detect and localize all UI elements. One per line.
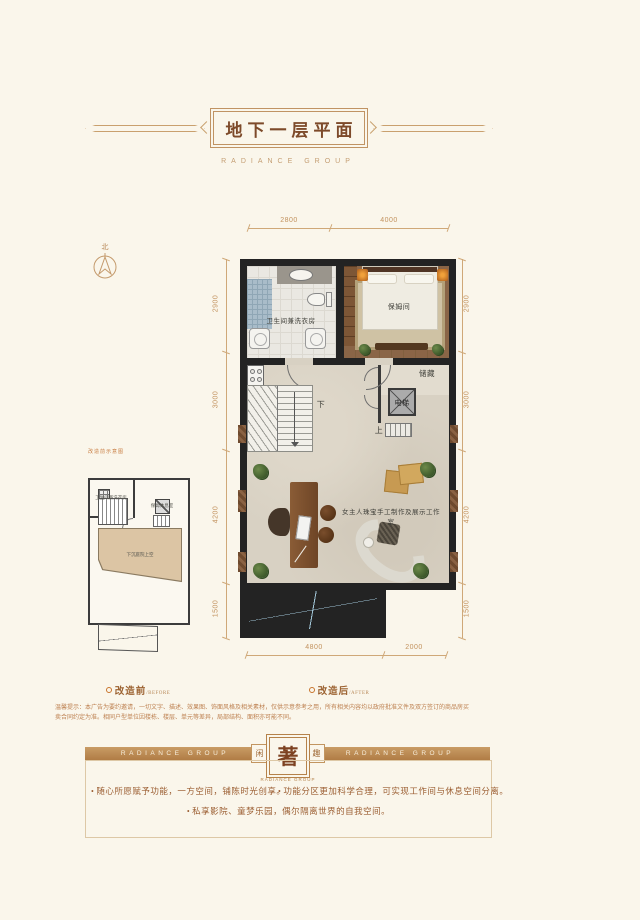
pilaster: [450, 425, 458, 443]
toilet-icon: [307, 292, 334, 308]
vanity-counter: [277, 266, 332, 284]
dim-label: 3000: [213, 382, 220, 418]
before-rest-label: 保姆休息室: [136, 503, 188, 509]
caption-before-en: /BEFORE: [146, 691, 170, 696]
caption-after-zh: 改造后: [318, 687, 350, 697]
wall: [133, 478, 135, 518]
door-opening: [365, 358, 393, 365]
disclaimer: 温馨提示：本广告为要约邀请，一切文字、描述、效果图、饰面风格及相关素材，仅供示意…: [55, 703, 491, 723]
plant-icon: [420, 462, 435, 477]
bullet-ring-icon: [106, 687, 112, 693]
nightstand-icon: [437, 269, 448, 281]
nanny-room: 保姆间: [344, 266, 449, 358]
feature-item-1: •随心所愿赋予功能，一方空间，铺陈时光创享。: [91, 785, 285, 797]
feature-text-1: 随心所愿赋予功能，一方空间，铺陈时光创享。: [96, 786, 285, 796]
disclaimer-line2: 卖合同约定为准。相同户型单位因楼栋、楼层、单元等差异，局部结构、面积亦可能不同。: [55, 713, 491, 723]
feature-text-2: 功能分区更加科学合理，可实现工作间与休息空间分离。: [283, 786, 508, 796]
dim-line-bottom: [246, 655, 446, 656]
caption-before-zh: 改造前: [115, 687, 147, 697]
plant-icon: [359, 344, 370, 355]
feature-box: •随心所愿赋予功能，一方空间，铺陈时光创享。 •功能分区更加科学合理，可实现工作…: [85, 760, 492, 838]
wall: [344, 358, 449, 365]
dim-label: 2800: [259, 217, 319, 224]
feature-item-3: •私享影院、童梦乐园，偶尔隔离世界的自我空间。: [86, 805, 491, 817]
main-staircase: [247, 385, 313, 452]
stool-icon: [320, 505, 336, 521]
dim-label: 2900: [464, 286, 471, 322]
stool-icon: [318, 527, 334, 543]
page-title: 地下一层平面: [221, 116, 358, 141]
dim-label: 1500: [213, 591, 220, 627]
header-ornament-left: [85, 125, 205, 132]
elevator-label: 电梯: [390, 398, 414, 408]
dim-label: 2000: [384, 644, 444, 651]
plant-icon: [413, 563, 428, 578]
plant-icon: [432, 344, 443, 355]
pilaster: [450, 490, 458, 512]
dim-label: 4000: [359, 217, 419, 224]
dim-label: 4200: [213, 497, 220, 533]
brochure-page: 地下一层平面 RADIANCE GROUP 北 卫生间兼洗衣房: [0, 0, 640, 920]
desk-chair: [268, 508, 290, 536]
bed-icon: [362, 266, 438, 330]
dim-label: 3000: [464, 382, 471, 418]
washer-icon: [249, 328, 270, 349]
dryer-icon: [305, 328, 326, 349]
stairs-up-label: 上: [373, 425, 385, 436]
dim-line-top: [248, 228, 448, 229]
header-chevron-right-icon: [364, 121, 377, 134]
page-title-badge: 地下一层平面: [213, 111, 365, 145]
before-void-label: 下沉庭院上空: [110, 552, 170, 558]
bullet-icon: •: [187, 807, 190, 816]
bullet-ring-icon: [309, 687, 315, 693]
elevator-shaft: 电梯: [388, 388, 416, 416]
window-glass: [249, 591, 377, 629]
wall: [336, 266, 344, 365]
stairs-down-label: 下: [315, 399, 327, 410]
dim-label: 4800: [284, 644, 344, 651]
header-ornament-right: [373, 125, 493, 132]
before-plan-caption: 改造前示意图: [88, 448, 124, 455]
bathroom-label: 卫生间兼洗衣房: [258, 315, 324, 325]
caption-before: 改造前/BEFORE: [83, 681, 193, 699]
feature-text-3: 私享影院、童梦乐园，偶尔隔离世界的自我空间。: [192, 806, 390, 816]
studio-label: 女主人珠宝手工制作及展示工作室: [340, 506, 442, 526]
floorplan-after: 卫生间兼洗衣房 保姆间: [240, 259, 456, 590]
round-table-icon: [363, 537, 374, 548]
plant-icon: [253, 464, 268, 479]
dim-line-left: [226, 259, 227, 638]
window-bay: [240, 583, 386, 638]
before-staircase: [98, 498, 128, 525]
bullet-icon: •: [91, 787, 94, 796]
compass-north-icon: 北: [90, 240, 120, 286]
up-staircase: [385, 423, 412, 437]
banner-group-right: RADIANCE GROUP: [320, 750, 480, 757]
dim-label: 1500: [464, 591, 471, 627]
pilaster: [238, 490, 246, 512]
pilaster: [450, 552, 458, 572]
floorplan-before: 改造前示意图 卫生间兼洗衣房 保姆休息室 下沉庭院上空: [88, 448, 196, 660]
before-window-outline: [98, 624, 158, 652]
bed-bench: [375, 343, 428, 350]
storage-label: 储藏: [409, 368, 445, 379]
caption-after: 改造后/AFTER: [284, 681, 394, 699]
plant-icon: [253, 563, 268, 578]
sink-icon: [289, 269, 313, 281]
before-small-stair: [153, 515, 170, 527]
feature-item-2: •功能分区更加科学合理，可实现工作间与休息空间分离。: [278, 785, 508, 797]
pilaster: [238, 425, 246, 443]
bullet-icon: •: [278, 787, 281, 796]
banner-group-left: RADIANCE GROUP: [95, 750, 255, 757]
header-group-name: RADIANCE GROUP: [208, 158, 368, 165]
caption-after-en: /AFTER: [349, 691, 369, 696]
compass-north-label: 北: [102, 243, 109, 251]
door-opening: [285, 358, 313, 365]
header-chevron-left-icon: [200, 121, 213, 134]
disclaimer-line1: 温馨提示：本广告为要约邀请，一切文字、描述、效果图、饰面风格及相关素材，仅供示意…: [55, 703, 491, 713]
nightstand-icon: [357, 269, 368, 281]
desk: [290, 482, 318, 568]
before-bathroom-label: 卫生间兼洗衣房: [90, 495, 132, 501]
dim-label: 4200: [464, 497, 471, 533]
nanny-room-label: 保姆间: [374, 302, 424, 312]
pilaster: [238, 552, 246, 572]
dim-label: 2900: [213, 286, 220, 322]
bathroom-laundry-room: 卫生间兼洗衣房: [247, 266, 336, 358]
